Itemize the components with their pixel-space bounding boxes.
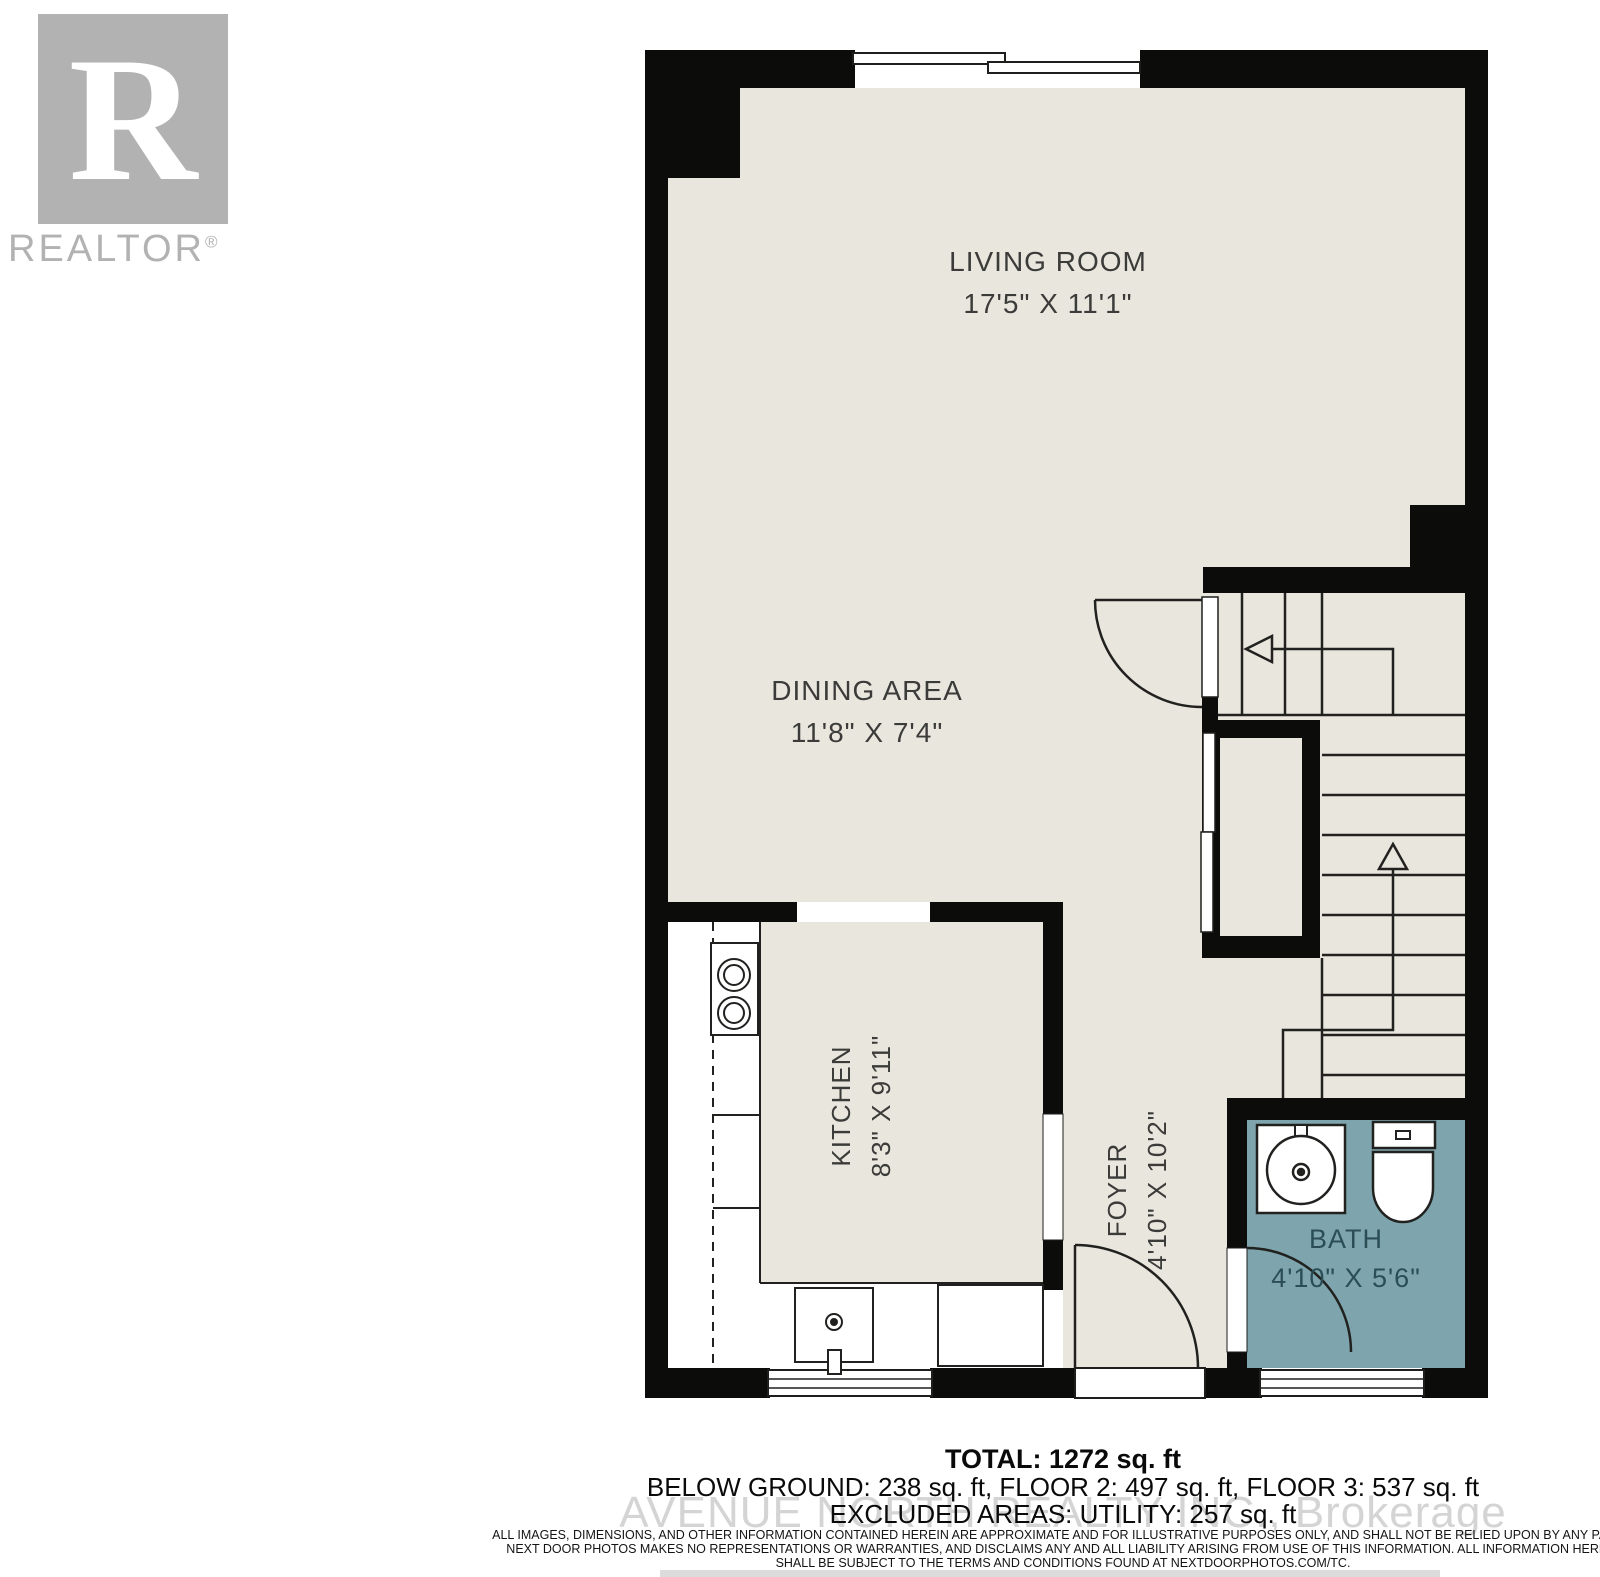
floor-plan-page: R REALTOR®	[0, 0, 1600, 1577]
room-dimensions: 8'3" X 9'11"	[861, 1035, 901, 1178]
room-name: FOYER	[1097, 1110, 1137, 1270]
room-dimensions: 11'8" X 7'4"	[771, 712, 962, 754]
bath-fixtures	[1257, 1122, 1435, 1222]
island-counter	[938, 1285, 1043, 1366]
bath-label: BATH 4'10" X 5'6"	[1271, 1220, 1421, 1298]
disclaimer-line: NEXT DOOR PHOTOS MAKES NO REPRESENTATION…	[506, 1542, 1600, 1556]
room-name: LIVING ROOM	[949, 241, 1147, 283]
kitchen-label: KITCHEN 8'3" X 9'11"	[821, 1035, 901, 1178]
room-name: BATH	[1271, 1220, 1421, 1259]
room-dimensions: 4'10" X 10'2"	[1137, 1110, 1177, 1270]
clipped-watermark-bar	[660, 1570, 1440, 1577]
entry-opening	[1075, 1368, 1205, 1398]
kitchen-passage-opening	[797, 902, 930, 922]
foyer-label: FOYER 4'10" X 10'2"	[1097, 1110, 1177, 1270]
burner	[718, 997, 750, 1029]
toilet-bowl	[1373, 1152, 1433, 1222]
kitchen-side-opening	[1043, 1114, 1063, 1240]
burner	[718, 959, 750, 991]
disclaimer-line: ALL IMAGES, DIMENSIONS, AND OTHER INFORM…	[492, 1528, 1600, 1542]
closet-slider-panel	[1203, 733, 1215, 832]
room-dimensions: 17'5" X 11'1"	[949, 283, 1147, 325]
patio-slider-panel	[988, 62, 1140, 73]
kitchen-window	[768, 1370, 932, 1396]
stair-door-opening	[1202, 597, 1218, 697]
bath-door-opening	[1227, 1248, 1247, 1352]
excluded-areas-text: EXCLUDED AREAS: UTILITY: 257 sq. ft	[830, 1499, 1297, 1530]
room-name: KITCHEN	[821, 1035, 861, 1178]
disclaimer-line: SHALL BE SUBJECT TO THE TERMS AND CONDIT…	[776, 1556, 1351, 1570]
kitchen-faucet	[828, 1350, 841, 1374]
floor-plan-drawing	[0, 0, 1600, 1577]
room-name: DINING AREA	[771, 670, 962, 712]
closet-slider-panel	[1201, 832, 1213, 932]
dining-area-label: DINING AREA 11'8" X 7'4"	[771, 670, 962, 754]
toilet-flush	[1396, 1131, 1410, 1139]
patio-slider-panel	[853, 53, 1005, 64]
total-area-text: TOTAL: 1272 sq. ft	[945, 1444, 1181, 1475]
living-room-label: LIVING ROOM 17'5" X 11'1"	[949, 241, 1147, 325]
bath-window	[1260, 1370, 1424, 1396]
room-dimensions: 4'10" X 5'6"	[1271, 1259, 1421, 1298]
